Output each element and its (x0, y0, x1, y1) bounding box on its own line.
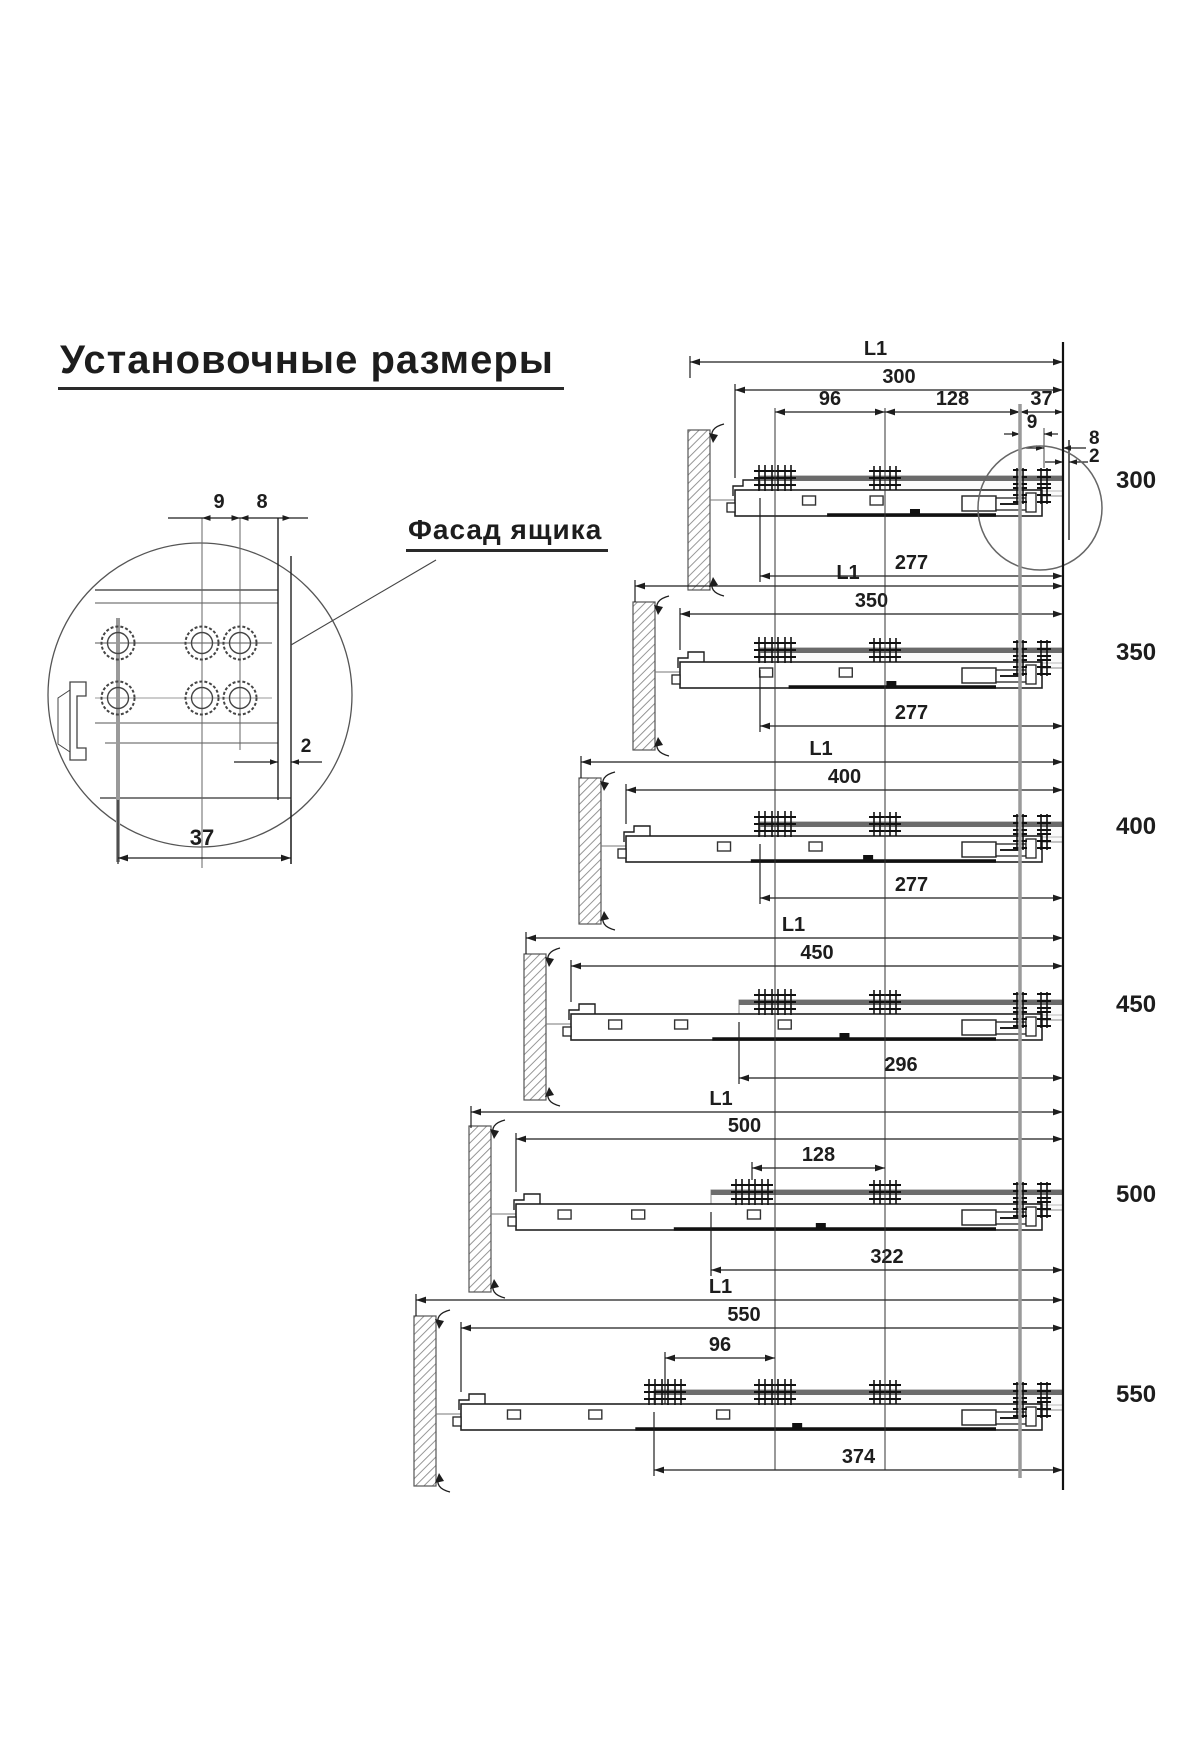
row-size-label: 550 (1116, 1381, 1156, 1408)
dim-arrow (875, 409, 885, 416)
disconnect-latch (962, 1020, 996, 1035)
dim-arrow (635, 583, 645, 590)
release-lever-nub (839, 1033, 849, 1040)
latch-bracket (1026, 839, 1036, 858)
cabinet-wall (414, 1316, 436, 1486)
dim-arrow (1053, 611, 1063, 618)
dim-label: 322 (870, 1246, 903, 1268)
row-size-label: 300 (1116, 467, 1156, 494)
dim-arrow (1053, 1297, 1063, 1304)
dim-label: 128 (802, 1144, 835, 1166)
dim-arrow (1053, 1075, 1063, 1082)
dim-arrow (416, 1297, 426, 1304)
dim-arrow (1053, 963, 1063, 970)
latch-bracket (1026, 493, 1036, 512)
rail-slot (747, 1210, 760, 1219)
rail-slot (778, 1020, 791, 1029)
row-size-label: 350 (1116, 639, 1156, 666)
release-lever-nub (863, 855, 873, 862)
dim-label: 2 (1089, 446, 1100, 467)
row-size-label: 450 (1116, 991, 1156, 1018)
dim-arrow (875, 1165, 885, 1172)
dim-arrow (1055, 459, 1063, 464)
drawer-rail-notch (672, 675, 680, 684)
dim-arrow (690, 359, 700, 366)
dim-arrow (1053, 387, 1063, 394)
dim-arrow (1053, 759, 1063, 766)
cabinet-wall (524, 954, 546, 1100)
cabinet-wall (688, 430, 710, 590)
drawer-rail-notch (453, 1417, 461, 1426)
latch-bracket (1026, 1017, 1036, 1036)
dim-label: 37 (1030, 388, 1052, 410)
dim-label: 296 (884, 1054, 917, 1076)
leader-line (291, 560, 436, 645)
disconnect-latch (962, 842, 996, 857)
side-bracket-profile (58, 690, 70, 752)
release-lever-nub (816, 1223, 826, 1230)
dim-label: 374 (842, 1446, 876, 1468)
dim-label: 96 (819, 388, 841, 410)
dim-arrow (291, 759, 299, 764)
dim-label: 37 (190, 825, 214, 850)
dim-arrow (1053, 935, 1063, 942)
dim-arrow (680, 611, 690, 618)
dim-arrow (752, 1165, 762, 1172)
release-lever-nub (910, 509, 920, 516)
row-size-label: 400 (1116, 813, 1156, 840)
dim-arrow (281, 855, 291, 862)
drawer-rail-notch (563, 1027, 571, 1036)
drawer-rail-notch (727, 503, 735, 512)
dim-arrow (270, 759, 278, 764)
dim-label: 500 (728, 1115, 761, 1137)
dim-arrow (232, 515, 241, 521)
dim-label: L1 (809, 738, 832, 760)
dim-arrow (1053, 787, 1063, 794)
dim-arrow (1053, 359, 1063, 366)
rail-slot (589, 1410, 602, 1419)
dim-label: 277 (895, 552, 928, 574)
dim-arrow (526, 935, 536, 942)
dim-arrow (1053, 723, 1063, 730)
dim-arrow (571, 963, 581, 970)
dim-arrow (1053, 1267, 1063, 1274)
cabinet-wall (579, 778, 601, 924)
dim-arrow (739, 1075, 749, 1082)
dim-label: 9 (1027, 412, 1038, 433)
dim-arrow (1044, 431, 1052, 436)
drawer-rail (461, 1404, 1042, 1430)
rail-slot (609, 1020, 622, 1029)
dim-arrow (760, 573, 770, 580)
dim-label: 277 (895, 702, 928, 724)
dim-label: 9 (213, 491, 224, 513)
latch-bracket (1026, 665, 1036, 684)
dim-arrow (1053, 895, 1063, 902)
rail-slot (558, 1210, 571, 1219)
dim-arrow (760, 895, 770, 902)
rail-slot (803, 496, 816, 505)
dim-arrow (654, 1467, 664, 1474)
dim-label: 96 (709, 1334, 731, 1356)
slide-diagram-svg: L1300277300L1350277350L1400277400L145029… (0, 0, 1200, 1760)
rail-slot (717, 1410, 730, 1419)
latch-bracket (1026, 1207, 1036, 1226)
dim-arrow (1053, 1109, 1063, 1116)
rail-slot (718, 842, 731, 851)
cabinet-wall (633, 602, 655, 750)
disconnect-latch (962, 1210, 996, 1225)
dim-label: 550 (727, 1304, 760, 1326)
release-lever-nub (792, 1423, 802, 1430)
dim-arrow (626, 787, 636, 794)
disconnect-latch (962, 668, 996, 683)
rail-slot (839, 668, 852, 677)
dim-label: 128 (936, 388, 969, 410)
dim-arrow (202, 515, 211, 521)
dim-arrow (1063, 445, 1071, 450)
cabinet-wall (469, 1126, 491, 1292)
dim-label: 350 (855, 590, 888, 612)
rail-slot (507, 1410, 520, 1419)
dim-arrow (240, 515, 249, 521)
dim-arrow (775, 409, 785, 416)
dim-arrow (760, 723, 770, 730)
dim-arrow (1053, 1325, 1063, 1332)
rail-slot (760, 668, 773, 677)
dim-arrow (283, 515, 292, 521)
dim-label: L1 (864, 338, 887, 360)
dim-arrow (1055, 409, 1063, 414)
cabinet-rail-top-band (654, 1390, 1063, 1395)
dim-arrow (1053, 573, 1063, 580)
dim-label: L1 (836, 562, 859, 584)
rail-slot (675, 1020, 688, 1029)
dim-label: L1 (709, 1276, 732, 1298)
dim-arrow (735, 387, 745, 394)
dim-arrow (1053, 583, 1063, 590)
dim-arrow (765, 1355, 775, 1362)
dim-label: 277 (895, 874, 928, 896)
dim-label: L1 (709, 1088, 732, 1110)
dim-label: 300 (882, 366, 915, 388)
detail-circle (48, 543, 352, 847)
latch-bracket (1026, 1407, 1036, 1426)
dim-arrow (1069, 459, 1077, 464)
dim-arrow (711, 1267, 721, 1274)
dim-label: 400 (828, 766, 861, 788)
dim-label: L1 (782, 914, 805, 936)
dim-arrow (885, 409, 895, 416)
dim-label: 8 (256, 491, 267, 513)
dim-arrow (1053, 1467, 1063, 1474)
dim-arrow (461, 1325, 471, 1332)
release-lever-nub (886, 681, 896, 688)
drawer-rail-notch (508, 1217, 516, 1226)
side-bracket-profile (70, 682, 86, 760)
dim-arrow (581, 759, 591, 766)
rail-slot (870, 496, 883, 505)
dim-arrow (1053, 1136, 1063, 1143)
dim-label: 450 (800, 942, 833, 964)
disconnect-latch (962, 1410, 996, 1425)
rail-slot (632, 1210, 645, 1219)
row-size-label: 500 (1116, 1181, 1156, 1208)
dim-label: 2 (301, 736, 312, 757)
dim-arrow (516, 1136, 526, 1143)
dim-arrow (471, 1109, 481, 1116)
dim-arrow (665, 1355, 675, 1362)
rail-slot (809, 842, 822, 851)
installation-dimensions-drawing: Установочные размеры Фасад ящика L130027… (0, 0, 1200, 1760)
drawer-rail-notch (618, 849, 626, 858)
